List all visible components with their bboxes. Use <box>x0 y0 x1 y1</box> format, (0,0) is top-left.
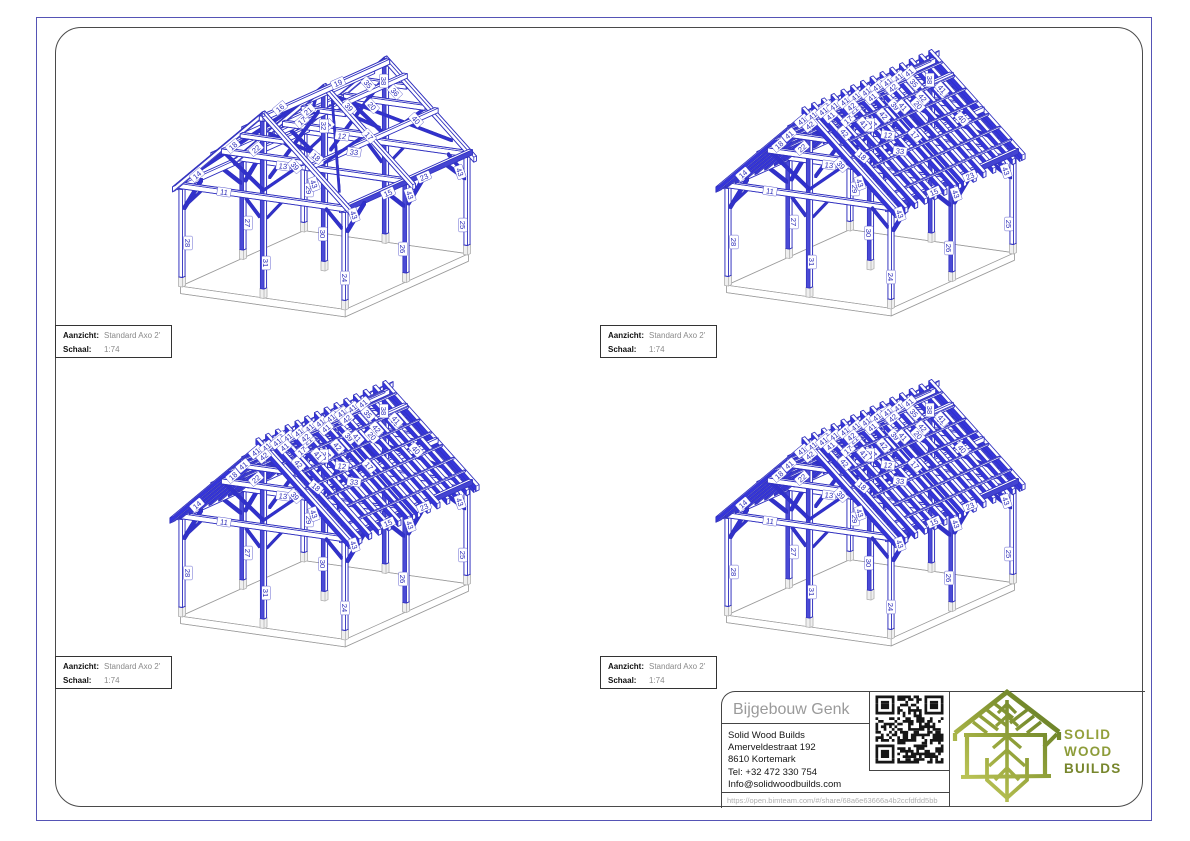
svg-text:WOOD: WOOD <box>1064 744 1112 759</box>
svg-text:SOLID: SOLID <box>1064 727 1111 742</box>
svg-text:BUILDS: BUILDS <box>1064 761 1121 776</box>
